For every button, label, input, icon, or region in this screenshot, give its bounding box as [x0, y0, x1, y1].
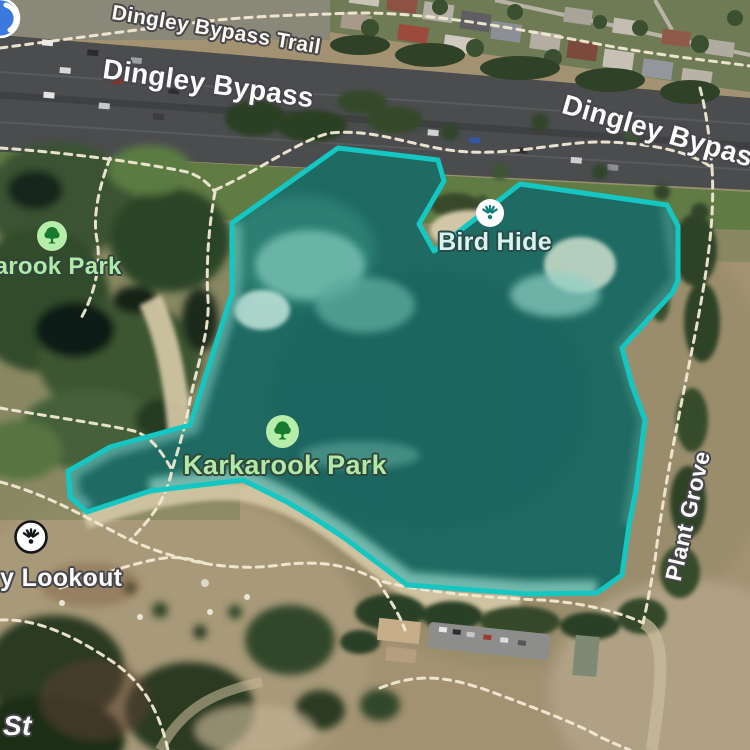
- satellite-map-view[interactable]: Dingley Bypass Trail Dingley Bypass Ding…: [0, 0, 750, 750]
- park-tree-icon[interactable]: [266, 415, 299, 448]
- bird-hide-label[interactable]: Bird Hide: [415, 230, 575, 255]
- route-shield-icon: [0, 0, 24, 41]
- lookout-viewpoint-icon[interactable]: [14, 520, 48, 554]
- park-label-left[interactable]: Karkarook Park: [0, 255, 122, 279]
- lookout-label[interactable]: Dragonfly Lookout: [0, 566, 122, 591]
- street-label: St: [3, 712, 32, 740]
- park-tree-icon[interactable]: [37, 221, 67, 251]
- park-label-center[interactable]: Karkarook Park: [180, 452, 390, 479]
- bird-hide-viewpoint-icon[interactable]: [476, 199, 504, 227]
